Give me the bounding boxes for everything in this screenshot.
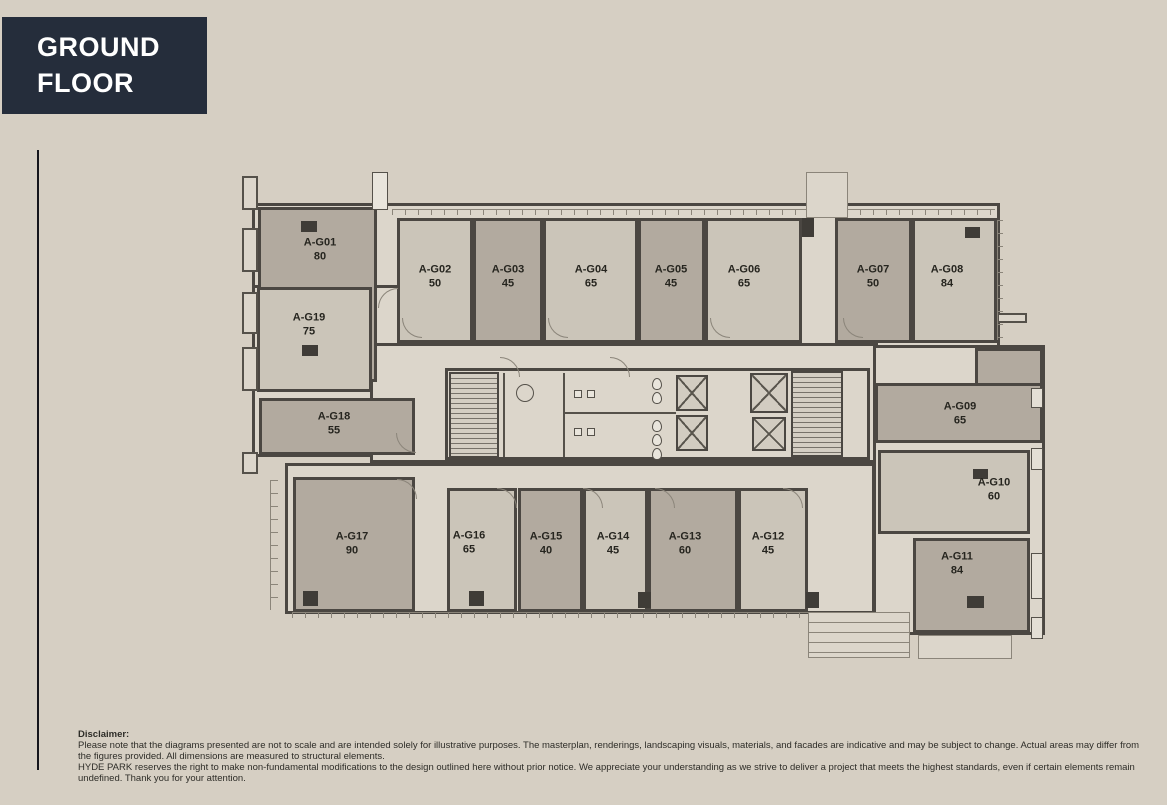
unit-label: A-G1445 bbox=[597, 530, 629, 559]
elevator-icon bbox=[676, 375, 708, 411]
sink-icon bbox=[587, 428, 595, 436]
unit-label: A-G1665 bbox=[453, 529, 485, 558]
unit-label: A-G1975 bbox=[293, 311, 325, 340]
column-marker bbox=[802, 218, 814, 237]
page: GROUND FLOOR A-G0180A-G0250A-G0345A-G046… bbox=[0, 0, 1167, 805]
window-slit bbox=[1031, 553, 1043, 599]
unit-label: A-G0665 bbox=[728, 263, 760, 292]
elevator-icon bbox=[752, 417, 786, 451]
ruler-ticks bbox=[997, 220, 1003, 340]
unit-label: A-G1184 bbox=[941, 550, 973, 579]
toilet-icon bbox=[652, 420, 662, 432]
unit-label: A-G0465 bbox=[575, 263, 607, 292]
column-marker bbox=[469, 591, 484, 606]
core-wall bbox=[563, 412, 676, 414]
disclaimer-heading: Disclaimer: bbox=[78, 729, 1142, 740]
core-wall bbox=[503, 373, 505, 457]
column-marker bbox=[303, 591, 318, 606]
elevator-icon bbox=[750, 373, 788, 413]
unit-label: A-G1855 bbox=[318, 410, 350, 439]
column-marker bbox=[965, 227, 980, 238]
elevator-icon bbox=[676, 415, 708, 451]
unit-label: A-G0750 bbox=[857, 263, 889, 292]
unit-label: A-G0965 bbox=[944, 400, 976, 429]
ruler-ticks bbox=[292, 612, 812, 618]
unit-a-g19 bbox=[257, 287, 372, 392]
column-marker bbox=[967, 596, 984, 608]
unit-label: A-G0345 bbox=[492, 263, 524, 292]
stairs-icon bbox=[449, 372, 499, 458]
unit-label: A-G1360 bbox=[669, 530, 701, 559]
sink-icon bbox=[574, 428, 582, 436]
balcony bbox=[242, 228, 258, 272]
unit-label: A-G1790 bbox=[336, 530, 368, 559]
vent-shaft bbox=[372, 172, 388, 210]
unit-label: A-G1245 bbox=[752, 530, 784, 559]
toilet-icon bbox=[652, 378, 662, 390]
disclaimer-paragraph-2: HYDE PARK reserves the right to make non… bbox=[78, 762, 1142, 784]
balcony bbox=[242, 452, 258, 474]
toilet-icon bbox=[652, 392, 662, 404]
window-slit bbox=[1031, 388, 1043, 408]
toilet-icon bbox=[652, 434, 662, 446]
disclaimer-paragraph-1: Please note that the diagrams presented … bbox=[78, 740, 1142, 762]
column-marker bbox=[806, 592, 819, 608]
unit-label: A-G0180 bbox=[304, 236, 336, 265]
column-marker bbox=[302, 345, 318, 356]
core-wall bbox=[563, 373, 565, 457]
sink-icon bbox=[574, 390, 582, 398]
unit-area bbox=[975, 348, 1043, 388]
unit-label: A-G0545 bbox=[655, 263, 687, 292]
balcony bbox=[242, 347, 258, 391]
column-marker bbox=[301, 221, 317, 232]
unit-label: A-G1540 bbox=[530, 530, 562, 559]
balcony bbox=[242, 176, 258, 210]
toilet-icon bbox=[652, 448, 662, 460]
accessible-wc-icon bbox=[516, 384, 534, 402]
disclaimer: Disclaimer: Please note that the diagram… bbox=[78, 729, 1142, 784]
entrance-porch bbox=[918, 635, 1012, 659]
window-slit bbox=[1031, 617, 1043, 639]
unit-label: A-G1060 bbox=[978, 476, 1010, 505]
entrance-vestibule bbox=[806, 172, 848, 218]
entrance-canopy bbox=[808, 612, 910, 658]
column-marker bbox=[638, 592, 651, 608]
stairs-icon bbox=[791, 371, 843, 457]
balcony bbox=[242, 292, 258, 334]
unit-label: A-G0250 bbox=[419, 263, 451, 292]
unit-label: A-G0884 bbox=[931, 263, 963, 292]
sink-icon bbox=[587, 390, 595, 398]
floorplan: A-G0180A-G0250A-G0345A-G0465A-G0545A-G06… bbox=[0, 0, 1167, 805]
ruler-ticks bbox=[270, 480, 278, 610]
window-slit bbox=[1031, 448, 1043, 470]
ruler-ticks bbox=[392, 209, 995, 215]
